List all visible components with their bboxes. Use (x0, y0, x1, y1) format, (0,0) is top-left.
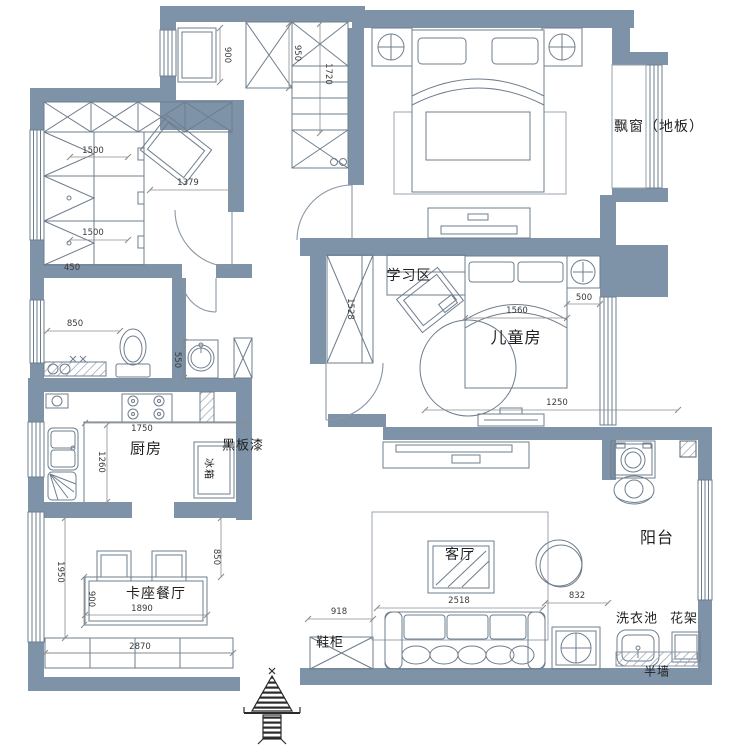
bathroom-door (182, 278, 216, 312)
entry-closets (178, 22, 348, 168)
cloakroom-door (175, 210, 232, 267)
north-compass-icon (244, 668, 300, 744)
master-bedroom-door (297, 185, 352, 240)
bay-window-seat (612, 65, 646, 188)
fridge (194, 442, 234, 498)
side-table (536, 540, 582, 587)
balcony-column (680, 441, 696, 457)
master-bedroom-furniture (372, 28, 582, 238)
stove (122, 394, 172, 422)
study-niche (387, 255, 465, 295)
floorplan-canvas: 飘窗（地板）学习区儿童房厨房黑板漆冰箱卡座餐厅客厅阳台鞋柜洗衣池花架半墙9009… (0, 0, 750, 747)
nightstand (372, 28, 412, 66)
kitchen-fixtures (46, 392, 236, 502)
half-wall-hatch (616, 652, 698, 666)
dining-chair (97, 551, 131, 581)
balcony-chair (614, 476, 654, 504)
master-tv-stand (428, 208, 530, 238)
foyer-shoe-cabinet (310, 637, 373, 669)
tv-cabinet (383, 442, 529, 468)
window-bay-right (646, 65, 662, 188)
window-kitchen-left (28, 422, 44, 477)
living-room-furniture (372, 442, 600, 669)
nightstand (542, 28, 582, 66)
toilet (116, 329, 150, 377)
dining-furniture (45, 551, 233, 668)
dish-rack (48, 472, 76, 500)
bath-cabinet (234, 338, 252, 378)
master-bed (412, 30, 544, 192)
window-balcony-right (698, 480, 712, 600)
washbasin (184, 340, 218, 378)
kitchen-flue (200, 392, 214, 422)
window-entry-left (160, 30, 176, 76)
kitchen-sink (48, 428, 78, 470)
balcony-fixtures (611, 441, 700, 666)
washing-machine (611, 441, 655, 478)
dining-chair (152, 551, 186, 581)
corner-table (552, 627, 600, 669)
bathroom-fixtures (44, 329, 252, 378)
kids-tv-stand (478, 408, 544, 426)
floorplan-drawing (0, 0, 750, 747)
kids-room-furniture (327, 255, 600, 426)
kids-nightstand (567, 256, 600, 288)
coffee-table (428, 541, 494, 593)
window-cloakroom-left (30, 130, 44, 240)
window-dining-left (28, 512, 44, 642)
window-kids-right (600, 297, 616, 425)
kids-wardrobe (327, 255, 373, 363)
window-bath-left (30, 300, 44, 363)
kids-room-door (326, 363, 383, 420)
